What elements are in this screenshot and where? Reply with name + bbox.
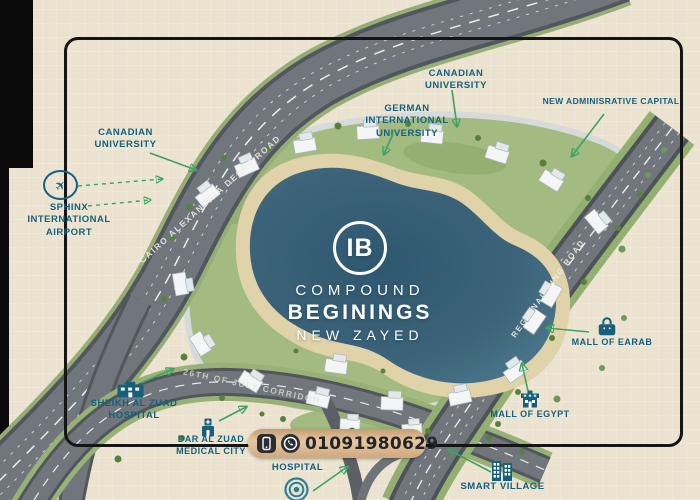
label-canadian-university-north: CANADIAN UNIVERSITY <box>400 68 512 93</box>
label-dar-al-zuad-medical-city: DAR AL ZUAD MEDICAL CITY <box>166 434 256 457</box>
label-sphinx-airport: SPHINX INTERNATIONAL AIRPORT <box>8 202 130 239</box>
label-canadian-university-west: CANADIAN UNIVERSITY <box>68 127 183 152</box>
logo-line-beginings: BEGININGS <box>270 301 450 325</box>
phone-icon <box>257 434 276 453</box>
whatsapp-icon <box>281 434 300 453</box>
logo-line-compound: COMPOUND <box>270 282 450 299</box>
airplane-icon: ✈ <box>43 170 78 200</box>
label-new-administrative-capital: NEW ADMINISRATIVE CAPITAL <box>536 96 686 107</box>
label-sheikh-al-zuad-hospital: SHEIKH AL ZUAD HOSPITAL <box>78 398 190 423</box>
spiral-logo-icon <box>283 476 310 500</box>
phone-pill: 01091980629 <box>248 429 426 458</box>
label-mall-of-egypt: MALL OF EGYPT <box>485 409 575 421</box>
compound-logo: IB COMPOUND BEGININGS NEW ZAYED <box>270 221 450 343</box>
masterplan-map: CAIRO ALEXANDRIA DESRT ROAD REGIONAL RIN… <box>0 0 700 500</box>
label-german-university: GERMAN INTERNATIONAL UNIVERSITY <box>343 103 471 140</box>
logo-monogram-circle: IB <box>333 221 387 275</box>
phone-number: 01091980629 <box>305 434 438 454</box>
label-mall-of-earab: MALL OF EARAB <box>562 337 662 349</box>
logo-monogram: IB <box>347 234 374 263</box>
label-smart-village: SMART VILLAGE <box>450 481 555 493</box>
logo-line-new-zayed: NEW ZAYED <box>270 327 450 343</box>
